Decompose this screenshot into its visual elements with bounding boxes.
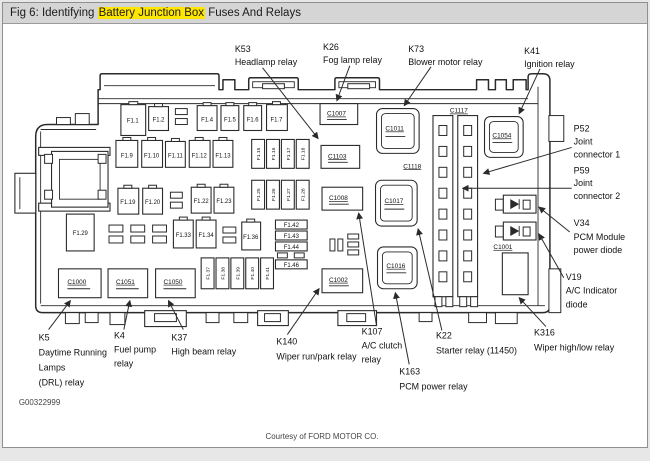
callout-name: Wiper run/park relay xyxy=(276,351,357,361)
fuse-f1-6: F1.6 xyxy=(244,103,262,131)
callout-line: relay xyxy=(114,358,134,368)
callout-code: V19 xyxy=(566,272,582,282)
fuse-f1-36: F1.36 xyxy=(242,219,261,250)
fuse-f1-43: F1.43 xyxy=(275,231,307,240)
callout-line: Lamps xyxy=(39,362,66,372)
fuse-label: F1.34 xyxy=(199,233,215,239)
fuse-f1-7: F1.7 xyxy=(267,102,288,131)
fuse-label: F1.40 xyxy=(250,267,256,280)
connector-c1050: C1050 xyxy=(156,269,196,298)
fuse-f1-15: F1.15 xyxy=(252,139,265,168)
fuse-label: F1.19 xyxy=(120,200,136,206)
callout-line: Joint xyxy=(574,136,593,146)
callout-code: K22 xyxy=(436,330,452,340)
fuse-label: F1.42 xyxy=(284,223,299,229)
figure-title-bar: Fig 6: Identifying Battery Junction Box … xyxy=(3,3,647,24)
fuse-label: F1.37 xyxy=(206,267,212,280)
relay-label: C1054 xyxy=(492,132,511,139)
fuse-label: F1.36 xyxy=(243,235,259,241)
callout-line: Fuel pump xyxy=(114,344,156,354)
callout-name: Blower motor relay xyxy=(408,57,483,67)
callout-line: connector 2 xyxy=(574,191,621,201)
fuse-f1-9: F1.9 xyxy=(116,137,138,167)
callout-code: K4 xyxy=(114,330,125,340)
fuse-f1-44: F1.44 xyxy=(275,242,307,251)
fuse-f1-39: F1.39 xyxy=(231,258,244,289)
fuse-f1-33: F1.33 xyxy=(173,217,193,248)
callout-k140: K140Wiper run/park relay xyxy=(276,336,357,361)
connector-label: C1007 xyxy=(327,111,346,118)
figure-viewer-window: Fig 6: Identifying Battery Junction Box … xyxy=(2,2,648,448)
fuse-box-diagram: F1.1 F1.2 F1.4 F1.5 F1.6 F1.7 F1.9 F1.10… xyxy=(3,24,647,447)
fuse-f1-23: F1.23 xyxy=(214,184,234,213)
connector-label: C1000 xyxy=(67,279,86,286)
callout-k26: K26Fog lamp relay xyxy=(323,42,382,65)
fuse-label: F1.2 xyxy=(153,118,165,124)
figure-title-suffix: Fuses And Relays xyxy=(205,7,301,19)
connector-label-c1117: C1117 xyxy=(450,108,468,115)
fuse-label: F1.20 xyxy=(145,200,161,206)
callout-code: K26 xyxy=(323,42,339,52)
fuse-f1-18: F1.18 xyxy=(296,139,309,168)
connector-label: C1050 xyxy=(164,279,183,286)
fuse-label: F1.22 xyxy=(194,199,209,205)
callout-line: A/C Indicator xyxy=(566,286,617,296)
callout-line: power diode xyxy=(574,245,623,255)
fuse-f1-2: F1.2 xyxy=(149,104,169,131)
callout-k5: K5Daytime RunningLamps(DRL) relay xyxy=(39,332,107,387)
connector-label: C1051 xyxy=(116,279,135,286)
fuse-f1-28: F1.28 xyxy=(296,180,309,209)
fuse-f1-34: F1.34 xyxy=(196,217,216,248)
relay-label: C1017 xyxy=(384,198,403,205)
fuse-label: F1.27 xyxy=(286,188,292,201)
callout-k73: K73Blower motor relay xyxy=(408,44,483,67)
relay-c1054: C1054 xyxy=(485,117,524,158)
callout-code: P52 xyxy=(574,123,590,133)
fuse-label: F1.29 xyxy=(73,231,89,237)
fuse-label: F1.33 xyxy=(176,233,192,239)
connector-label-c1118: C1118 xyxy=(403,163,421,170)
joint-connector-strip-1 xyxy=(433,116,453,307)
callout-line: PCM Module xyxy=(574,232,625,242)
callout-code: K140 xyxy=(276,336,297,346)
callout-v34: V34PCM Modulepower diode xyxy=(574,218,625,255)
fuse-label: F1.10 xyxy=(144,153,160,159)
fuse-f1-46: F1.46 xyxy=(275,260,307,269)
callout-code: V34 xyxy=(574,218,590,228)
relay-k316-socket xyxy=(502,253,528,295)
callout-name: Wiper high/low relay xyxy=(534,342,615,352)
figure-title-highlight: Battery Junction Box xyxy=(98,7,205,19)
fuse-label: F1.17 xyxy=(286,147,292,160)
fuse-f1-40: F1.40 xyxy=(246,258,259,289)
callout-name: Starter relay (11450) xyxy=(436,345,517,355)
callout-line: relay xyxy=(362,354,382,364)
callout-p52: P52Jointconnector 1 xyxy=(574,123,621,159)
fuse-label: F1.12 xyxy=(192,153,207,159)
fuse-f1-16: F1.16 xyxy=(267,139,280,168)
connector-c1002: C1002 xyxy=(322,269,363,293)
fuse-label: F1.11 xyxy=(168,153,183,159)
callout-code: K37 xyxy=(171,332,187,342)
callout-p59: P59Jointconnector 2 xyxy=(574,165,621,201)
fuse-label: F1.39 xyxy=(235,267,241,280)
callout-line: Daytime Running xyxy=(39,347,107,357)
fuse-label: F1.43 xyxy=(284,234,300,240)
callout-name: Headlamp relay xyxy=(235,57,298,67)
fuse-f1-11: F1.11 xyxy=(165,138,185,167)
fuse-label: F1.16 xyxy=(271,147,277,160)
fuse-f1-10: F1.10 xyxy=(142,137,163,167)
connector-label: C1002 xyxy=(329,277,348,284)
fuse-f1-42: F1.42 xyxy=(275,220,307,229)
connector-c1103: C1103 xyxy=(321,145,360,168)
callout-code: K107 xyxy=(362,327,383,337)
fuse-f1-20: F1.20 xyxy=(143,185,163,214)
fuse-label: F1.44 xyxy=(284,245,300,251)
callout-code: K163 xyxy=(399,366,420,376)
connector-c1051: C1051 xyxy=(108,269,148,298)
fuse-label: F1.5 xyxy=(224,118,237,124)
callout-line: (DRL) relay xyxy=(39,377,85,387)
fuse-f1-26: F1.26 xyxy=(267,180,280,209)
fuse-label: F1.15 xyxy=(256,147,262,160)
callout-k163: K163PCM power relay xyxy=(399,366,468,391)
credit-line: Courtesy of FORD MOTOR CO. xyxy=(266,432,379,441)
callout-k22: K22Starter relay (11450) xyxy=(436,330,517,355)
fuse-label: F1.7 xyxy=(271,118,283,124)
callout-line: A/C clutch xyxy=(362,340,403,350)
fuse-label: F1.1 xyxy=(127,119,140,125)
fuse-f1-41: F1.41 xyxy=(261,258,274,289)
relay-c1016: C1016 xyxy=(378,247,418,289)
callout-k37: K37High beam relay xyxy=(171,332,236,356)
fuse-f1-27: F1.27 xyxy=(281,180,294,209)
connector-label: C1008 xyxy=(329,195,348,202)
callout-line: diode xyxy=(566,300,588,310)
connector-label-c1001: C1001 xyxy=(493,244,512,251)
fuse-label: F1.28 xyxy=(301,188,307,201)
connector-c1008: C1008 xyxy=(322,187,363,210)
fuse-f1-25: F1.25 xyxy=(252,180,265,209)
fuse-f1-17: F1.17 xyxy=(281,139,294,168)
fuse-f1-5: F1.5 xyxy=(221,103,239,131)
callout-name: Ignition relay xyxy=(524,59,575,69)
callout-k4: K4Fuel pumprelay xyxy=(114,330,156,368)
fuse-label: F1.38 xyxy=(220,267,226,280)
fuse-label: F1.13 xyxy=(215,153,231,159)
fuse-f1-1: F1.1 xyxy=(121,102,146,136)
callout-name: Fog lamp relay xyxy=(323,55,382,65)
fuse-f1-22: F1.22 xyxy=(191,184,211,213)
fuse-label: F1.9 xyxy=(121,153,134,159)
fuse-f1-12: F1.12 xyxy=(189,137,210,167)
relay-label: C1011 xyxy=(385,125,404,132)
figure-title-prefix: Fig 6: Identifying xyxy=(10,7,98,19)
connector-c1000: C1000 xyxy=(58,269,101,298)
connector-c1007: C1007 xyxy=(320,104,358,125)
callout-code: K73 xyxy=(408,44,424,54)
callout-k41: K41Ignition relay xyxy=(524,46,575,69)
fuse-f1-29: F1.29 xyxy=(66,214,94,251)
callout-code: K5 xyxy=(39,332,50,342)
joint-connector-strip-2 xyxy=(458,116,478,307)
fuse-f1-38: F1.38 xyxy=(216,258,229,289)
callout-k316: K316Wiper high/low relay xyxy=(534,328,615,353)
callout-name: PCM power relay xyxy=(399,381,468,391)
fuse-f1-37: F1.37 xyxy=(201,258,214,289)
fuse-f1-4: F1.4 xyxy=(197,103,217,131)
fuse-label: F1.46 xyxy=(284,263,300,269)
callout-line: connector 1 xyxy=(574,149,621,159)
fuse-f1-19: F1.19 xyxy=(118,185,139,214)
diagram-canvas: F1.1 F1.2 F1.4 F1.5 F1.6 F1.7 F1.9 F1.10… xyxy=(3,24,647,447)
figure-code: G00322999 xyxy=(19,398,61,407)
callout-code: K41 xyxy=(524,46,540,56)
fuse-f1-13: F1.13 xyxy=(213,137,233,167)
callout-name: High beam relay xyxy=(171,346,236,356)
callout-v19: V19A/C Indicatordiode xyxy=(566,272,617,310)
relay-c1011: C1011 xyxy=(377,109,420,154)
relay-c1017: C1017 xyxy=(376,180,418,226)
callout-k53: K53Headlamp relay xyxy=(235,44,298,67)
fuse-label: F1.4 xyxy=(201,118,214,124)
callout-code: K53 xyxy=(235,44,251,54)
fuse-label: F1.41 xyxy=(265,267,271,280)
callout-line: Joint xyxy=(574,178,593,188)
callout-code: K316 xyxy=(534,328,555,338)
fuse-label: F1.26 xyxy=(271,188,277,201)
fuse-label: F1.6 xyxy=(247,118,260,124)
connector-label: C1103 xyxy=(328,153,347,160)
fuse-label: F1.18 xyxy=(301,147,307,160)
callout-k107: K107A/C clutchrelay xyxy=(362,327,403,365)
fuse-label: F1.23 xyxy=(216,199,232,205)
fuse-label: F1.25 xyxy=(256,188,262,201)
relay-label: C1016 xyxy=(386,263,405,270)
callout-code: P59 xyxy=(574,165,590,175)
